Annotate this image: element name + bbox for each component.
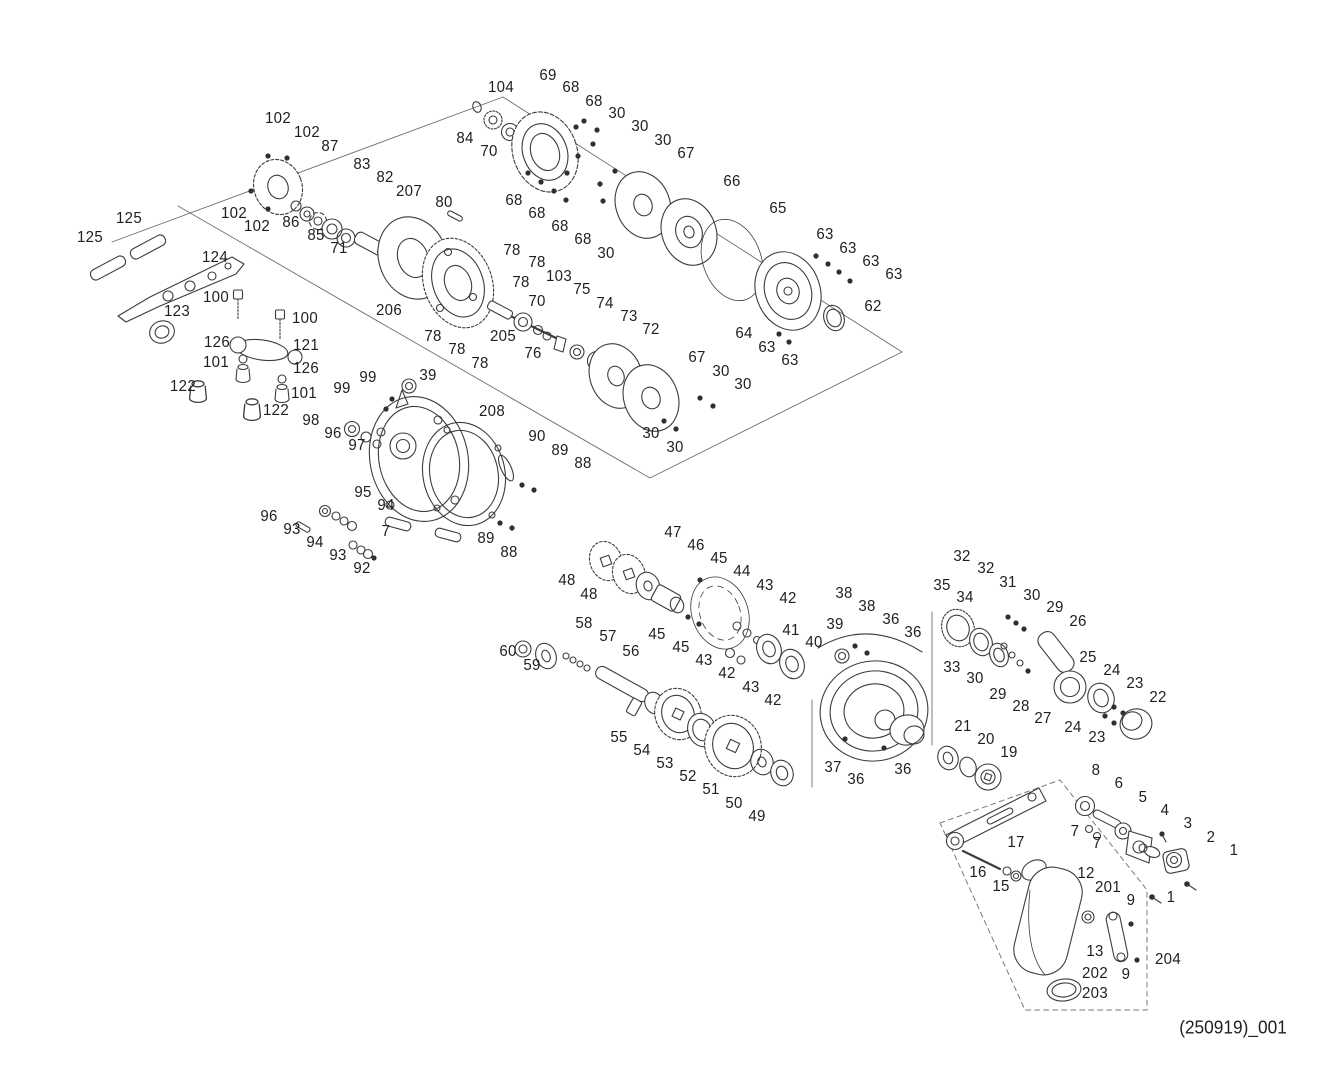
part-label-37: 37 <box>824 759 841 777</box>
part-label-65: 65 <box>769 200 786 218</box>
part-label-24: 24 <box>1064 719 1081 737</box>
part-label-93: 93 <box>329 547 346 565</box>
part-label-48: 48 <box>558 572 575 590</box>
part-label-87: 87 <box>321 138 338 156</box>
part-label-75: 75 <box>573 281 590 299</box>
part-label-45: 45 <box>672 639 689 657</box>
part-label-22: 22 <box>1149 689 1166 707</box>
part-label-204: 204 <box>1155 951 1181 969</box>
part-label-30: 30 <box>642 425 659 443</box>
part-label-100: 100 <box>292 310 318 328</box>
part-label-6: 6 <box>1115 775 1124 793</box>
part-label-78: 78 <box>503 242 520 260</box>
part-label-41: 41 <box>782 622 799 640</box>
part-label-62: 62 <box>864 298 881 316</box>
part-label-207: 207 <box>396 183 422 201</box>
part-label-59: 59 <box>523 657 540 675</box>
part-label-205: 205 <box>490 328 516 346</box>
part-label-208: 208 <box>479 403 505 421</box>
part-label-58: 58 <box>575 615 592 633</box>
part-label-98: 98 <box>302 412 319 430</box>
part-label-34: 34 <box>956 589 973 607</box>
part-label-30: 30 <box>654 132 671 150</box>
part-label-122: 122 <box>263 402 289 420</box>
part-label-32: 32 <box>977 560 994 578</box>
part-label-20: 20 <box>977 731 994 749</box>
part-label-43: 43 <box>756 577 773 595</box>
part-label-80: 80 <box>435 194 452 212</box>
part-label-29: 29 <box>1046 599 1063 617</box>
part-label-21: 21 <box>954 718 971 736</box>
part-label-126: 126 <box>204 334 230 352</box>
part-label-78: 78 <box>512 274 529 292</box>
part-label-88: 88 <box>500 544 517 562</box>
part-label-78: 78 <box>424 328 441 346</box>
part-label-78: 78 <box>471 355 488 373</box>
part-label-82: 82 <box>376 169 393 187</box>
part-label-95: 95 <box>354 484 371 502</box>
part-label-203: 203 <box>1082 985 1108 1003</box>
part-label-23: 23 <box>1126 675 1143 693</box>
part-label-35: 35 <box>933 577 950 595</box>
part-label-126: 126 <box>293 360 319 378</box>
part-label-125: 125 <box>77 229 103 247</box>
part-label-88: 88 <box>574 455 591 473</box>
part-label-31: 31 <box>999 574 1016 592</box>
part-label-92: 92 <box>353 560 370 578</box>
part-label-40: 40 <box>805 634 822 652</box>
part-label-7: 7 <box>1093 835 1102 853</box>
part-label-44: 44 <box>733 563 750 581</box>
part-label-84: 84 <box>456 130 473 148</box>
part-label-48: 48 <box>580 586 597 604</box>
part-label-30: 30 <box>734 376 751 394</box>
part-label-94: 94 <box>306 534 323 552</box>
part-label-42: 42 <box>764 692 781 710</box>
part-label-57: 57 <box>599 628 616 646</box>
part-label-36: 36 <box>904 624 921 642</box>
part-label-32: 32 <box>953 548 970 566</box>
part-label-9: 9 <box>1127 892 1136 910</box>
part-label-73: 73 <box>620 308 637 326</box>
part-label-97: 97 <box>348 437 365 455</box>
part-label-69: 69 <box>539 67 556 85</box>
part-label-89: 89 <box>477 530 494 548</box>
part-label-53: 53 <box>656 755 673 773</box>
part-label-4: 4 <box>1161 802 1170 820</box>
part-label-93: 93 <box>283 521 300 539</box>
part-label-70: 70 <box>528 293 545 311</box>
part-label-39: 39 <box>826 616 843 634</box>
part-label-3: 3 <box>1184 815 1193 833</box>
part-label-68: 68 <box>528 205 545 223</box>
part-label-30: 30 <box>666 439 683 457</box>
part-label-63: 63 <box>839 240 856 258</box>
part-label-55: 55 <box>610 729 627 747</box>
part-label-63: 63 <box>816 226 833 244</box>
part-label-94: 94 <box>377 497 394 515</box>
part-label-54: 54 <box>633 742 650 760</box>
part-label-66: 66 <box>723 173 740 191</box>
part-label-49: 49 <box>748 808 765 826</box>
part-label-68: 68 <box>585 93 602 111</box>
part-label-121: 121 <box>293 337 319 355</box>
part-label-103: 103 <box>546 268 572 286</box>
part-label-56: 56 <box>622 643 639 661</box>
part-label-30: 30 <box>712 363 729 381</box>
part-label-89: 89 <box>551 442 568 460</box>
part-label-5: 5 <box>1139 789 1148 807</box>
part-label-68: 68 <box>562 79 579 97</box>
part-label-96: 96 <box>324 425 341 443</box>
part-label-78: 78 <box>528 254 545 272</box>
part-label-30: 30 <box>631 118 648 136</box>
part-label-23: 23 <box>1088 729 1105 747</box>
part-label-12: 12 <box>1077 865 1094 883</box>
part-label-101: 101 <box>291 385 317 403</box>
part-label-68: 68 <box>551 218 568 236</box>
doc-code: (250919)_001 <box>1179 1018 1287 1039</box>
part-label-72: 72 <box>642 321 659 339</box>
part-label-47: 47 <box>664 524 681 542</box>
part-label-30: 30 <box>608 105 625 123</box>
part-label-83: 83 <box>353 156 370 174</box>
part-label-38: 38 <box>858 598 875 616</box>
part-label-99: 99 <box>359 369 376 387</box>
part-label-86: 86 <box>282 214 299 232</box>
part-label-202: 202 <box>1082 965 1108 983</box>
part-label-30: 30 <box>1023 587 1040 605</box>
part-label-90: 90 <box>528 428 545 446</box>
schematic-page: 1021028783822078010210286857112512512412… <box>0 0 1325 1075</box>
part-label-15: 15 <box>992 878 1009 896</box>
part-label-19: 19 <box>1000 744 1017 762</box>
part-label-13: 13 <box>1086 943 1103 961</box>
part-label-36: 36 <box>882 611 899 629</box>
part-label-1: 1 <box>1230 842 1239 860</box>
part-label-124: 124 <box>202 249 228 267</box>
part-label-63: 63 <box>862 253 879 271</box>
part-label-100: 100 <box>203 289 229 307</box>
part-label-201: 201 <box>1095 879 1121 897</box>
part-label-76: 76 <box>524 345 541 363</box>
part-label-102: 102 <box>294 124 320 142</box>
part-label-36: 36 <box>847 771 864 789</box>
part-label-74: 74 <box>596 295 613 313</box>
part-label-206: 206 <box>376 302 402 320</box>
part-label-78: 78 <box>448 341 465 359</box>
part-labels-layer: 1021028783822078010210286857112512512412… <box>0 0 1325 1075</box>
part-label-125: 125 <box>116 210 142 228</box>
part-label-45: 45 <box>648 626 665 644</box>
part-label-101: 101 <box>203 354 229 372</box>
part-label-122: 122 <box>170 378 196 396</box>
part-label-1: 1 <box>1167 889 1176 907</box>
part-label-28: 28 <box>1012 698 1029 716</box>
part-label-24: 24 <box>1103 662 1120 680</box>
part-label-99: 99 <box>333 380 350 398</box>
part-label-33: 33 <box>943 659 960 677</box>
part-label-102: 102 <box>244 218 270 236</box>
part-label-36: 36 <box>894 761 911 779</box>
part-label-46: 46 <box>687 537 704 555</box>
part-label-26: 26 <box>1069 613 1086 631</box>
part-label-43: 43 <box>742 679 759 697</box>
part-label-51: 51 <box>702 781 719 799</box>
part-label-29: 29 <box>989 686 1006 704</box>
part-label-8: 8 <box>1092 762 1101 780</box>
part-label-25: 25 <box>1079 649 1096 667</box>
part-label-104: 104 <box>488 79 514 97</box>
part-label-123: 123 <box>164 303 190 321</box>
part-label-7: 7 <box>382 523 391 541</box>
part-label-67: 67 <box>677 145 694 163</box>
part-label-102: 102 <box>265 110 291 128</box>
part-label-39: 39 <box>419 367 436 385</box>
part-label-67: 67 <box>688 349 705 367</box>
part-label-30: 30 <box>597 245 614 263</box>
part-label-42: 42 <box>718 665 735 683</box>
part-label-71: 71 <box>330 240 347 258</box>
part-label-7: 7 <box>1071 823 1080 841</box>
part-label-70: 70 <box>480 143 497 161</box>
part-label-17: 17 <box>1007 834 1024 852</box>
part-label-42: 42 <box>779 590 796 608</box>
part-label-30: 30 <box>966 670 983 688</box>
part-label-63: 63 <box>758 339 775 357</box>
part-label-68: 68 <box>574 231 591 249</box>
part-label-2: 2 <box>1207 829 1216 847</box>
part-label-85: 85 <box>307 227 324 245</box>
part-label-27: 27 <box>1034 710 1051 728</box>
part-label-68: 68 <box>505 192 522 210</box>
part-label-43: 43 <box>695 652 712 670</box>
part-label-38: 38 <box>835 585 852 603</box>
part-label-52: 52 <box>679 768 696 786</box>
part-label-63: 63 <box>781 352 798 370</box>
part-label-63: 63 <box>885 266 902 284</box>
part-label-64: 64 <box>735 325 752 343</box>
part-label-60: 60 <box>499 643 516 661</box>
part-label-45: 45 <box>710 550 727 568</box>
part-label-50: 50 <box>725 795 742 813</box>
part-label-16: 16 <box>969 864 986 882</box>
part-label-96: 96 <box>260 508 277 526</box>
part-label-9: 9 <box>1122 966 1131 984</box>
